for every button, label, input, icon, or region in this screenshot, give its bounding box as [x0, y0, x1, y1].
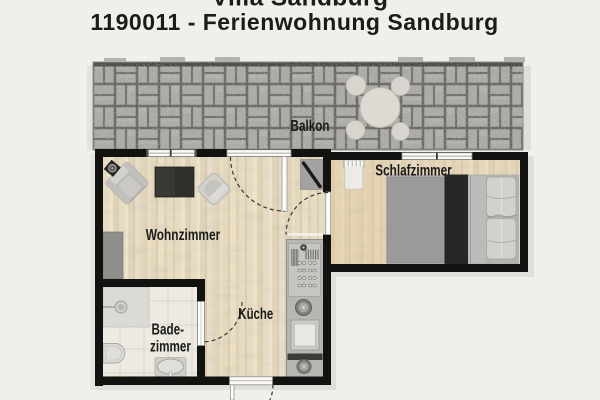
svg-text:Schlafzimmer: Schlafzimmer — [375, 163, 452, 180]
svg-text:Wohnzimmer: Wohnzimmer — [146, 227, 221, 244]
svg-text:Balkon: Balkon — [291, 118, 330, 135]
svg-text:Bade-: Bade- — [152, 322, 185, 339]
svg-text:zimmer: zimmer — [150, 339, 191, 356]
svg-text:Küche: Küche — [238, 306, 273, 323]
svg-text:1190011 - Ferienwohnung Sandbu: 1190011 - Ferienwohnung Sandburg — [90, 9, 498, 35]
